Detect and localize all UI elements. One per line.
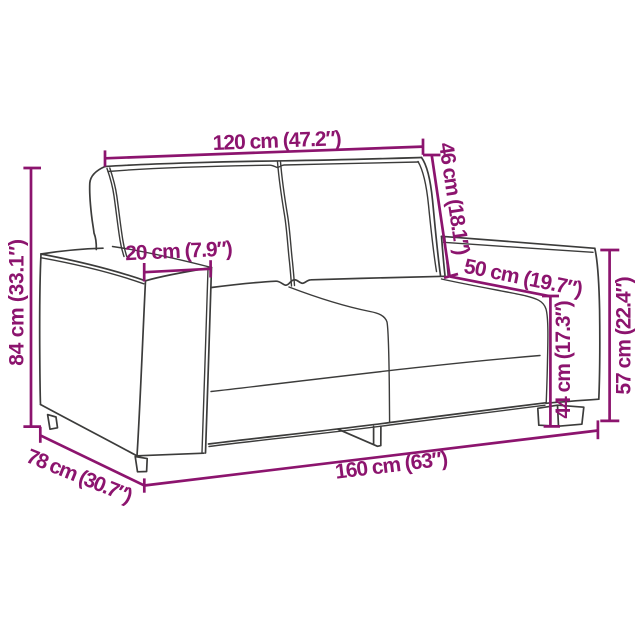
svg-text:84 cm (33.1″): 84 cm (33.1″)	[6, 239, 29, 365]
svg-text:44 cm (17.3″): 44 cm (17.3″)	[552, 301, 575, 418]
svg-text:120 cm (47.2″): 120 cm (47.2″)	[212, 127, 341, 155]
svg-text:57 cm (22.4″): 57 cm (22.4″)	[613, 277, 636, 394]
svg-text:20 cm (7.9″): 20 cm (7.9″)	[125, 238, 233, 266]
